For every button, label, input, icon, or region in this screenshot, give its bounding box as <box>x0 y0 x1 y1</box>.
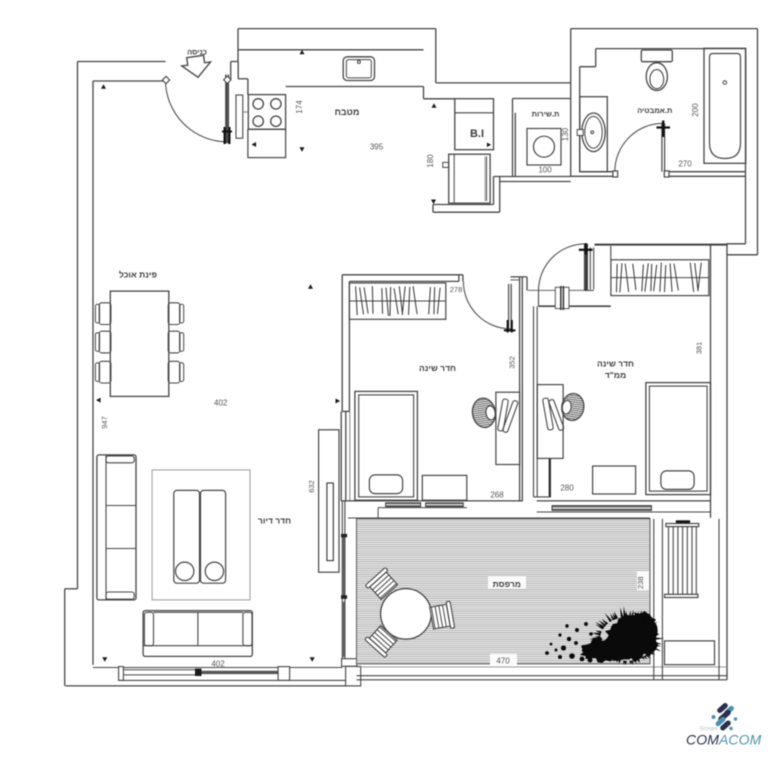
svg-text:חדר שינה: חדר שינה <box>419 363 456 373</box>
svg-text:280: 280 <box>560 484 574 493</box>
svg-text:חדר דיור: חדר דיור <box>258 516 291 526</box>
svg-text:352: 352 <box>508 356 517 369</box>
svg-text:238: 238 <box>636 576 645 589</box>
svg-text:180: 180 <box>426 154 435 168</box>
svg-text:COMACOM: COMACOM <box>686 731 762 747</box>
svg-text:200: 200 <box>691 103 700 117</box>
svg-text:402: 402 <box>214 399 228 408</box>
svg-text:מטבח: מטבח <box>335 107 360 117</box>
svg-text:100: 100 <box>538 166 552 175</box>
svg-text:B.I: B.I <box>470 128 484 140</box>
svg-text:ממ"ד: ממ"ד <box>605 370 626 380</box>
svg-text:174: 174 <box>295 100 304 114</box>
svg-text:268: 268 <box>490 491 504 500</box>
svg-text:פינת אוכל: פינת אוכל <box>119 269 157 279</box>
svg-text:130: 130 <box>561 127 570 141</box>
svg-text:632: 632 <box>307 480 316 493</box>
svg-text:ת.שירות: ת.שירות <box>532 110 560 119</box>
svg-text:ת.אמבטיה: ת.אמבטיה <box>637 106 672 115</box>
svg-text:470: 470 <box>496 657 510 666</box>
svg-text:947: 947 <box>100 416 109 429</box>
svg-text:מרפסת: מרפסת <box>493 579 521 589</box>
svg-text:270: 270 <box>678 159 692 168</box>
svg-text:278: 278 <box>450 285 463 294</box>
svg-text:חדר שינה: חדר שינה <box>597 358 634 368</box>
svg-text:כניסה: כניסה <box>187 48 207 57</box>
svg-text:395: 395 <box>370 143 384 152</box>
svg-text:381: 381 <box>695 342 704 355</box>
